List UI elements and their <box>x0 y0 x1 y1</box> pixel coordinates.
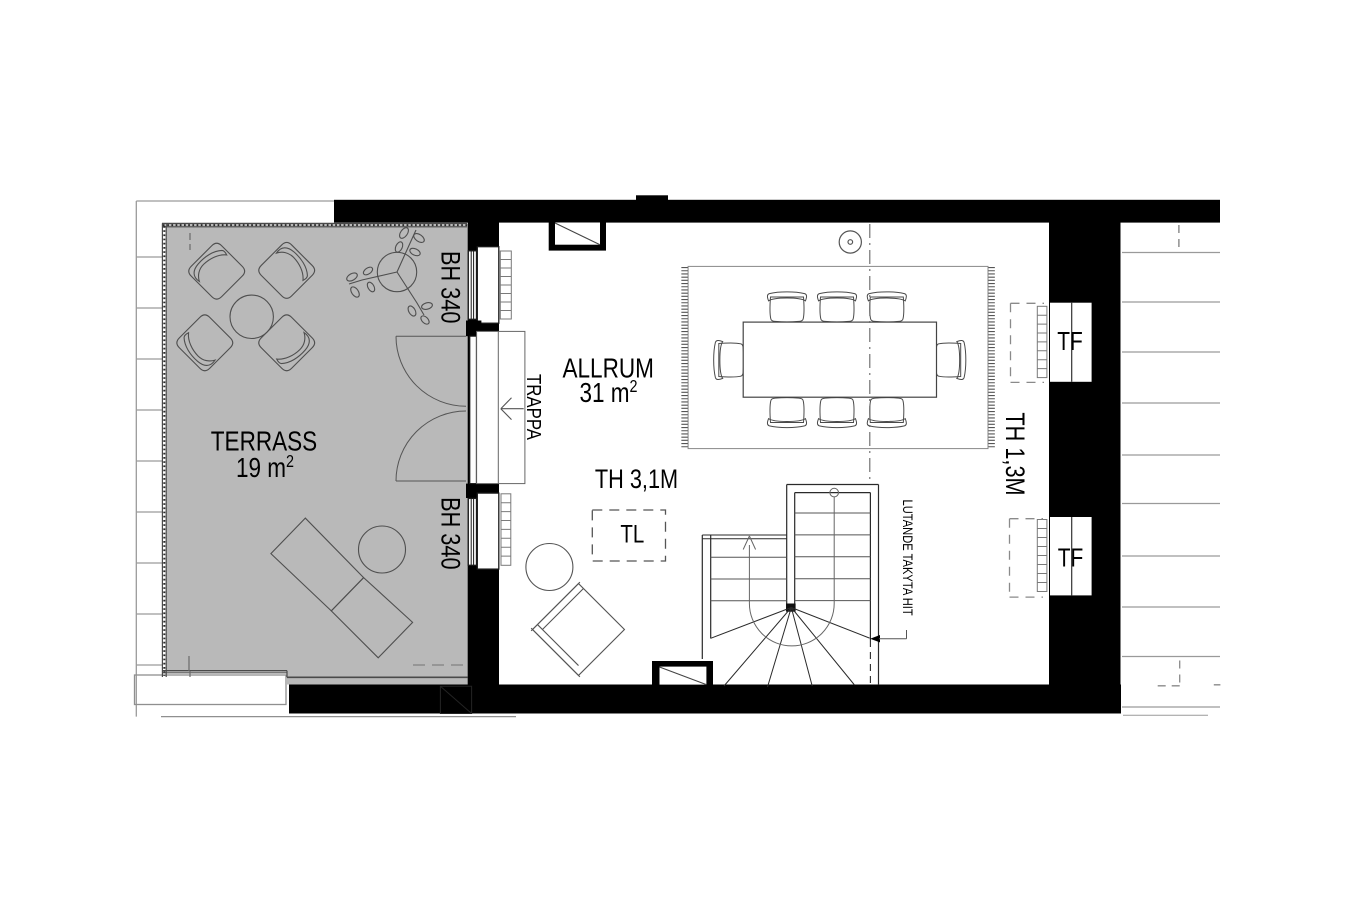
svg-text:TH 1,3M: TH 1,3M <box>999 412 1029 495</box>
svg-text:TH 3,1M: TH 3,1M <box>595 465 678 495</box>
svg-text:TRAPPA: TRAPPA <box>523 374 546 440</box>
svg-text:TF: TF <box>1057 327 1083 355</box>
svg-text:LUTANDE TAKYTA HIT: LUTANDE TAKYTA HIT <box>900 500 915 617</box>
svg-text:TL: TL <box>620 520 644 548</box>
svg-text:BH 340: BH 340 <box>435 251 465 323</box>
svg-text:BH 340: BH 340 <box>435 497 465 569</box>
svg-text:TF: TF <box>1058 543 1084 571</box>
svg-text:19 m2: 19 m2 <box>236 453 294 484</box>
svg-text:31 m2: 31 m2 <box>579 378 637 409</box>
